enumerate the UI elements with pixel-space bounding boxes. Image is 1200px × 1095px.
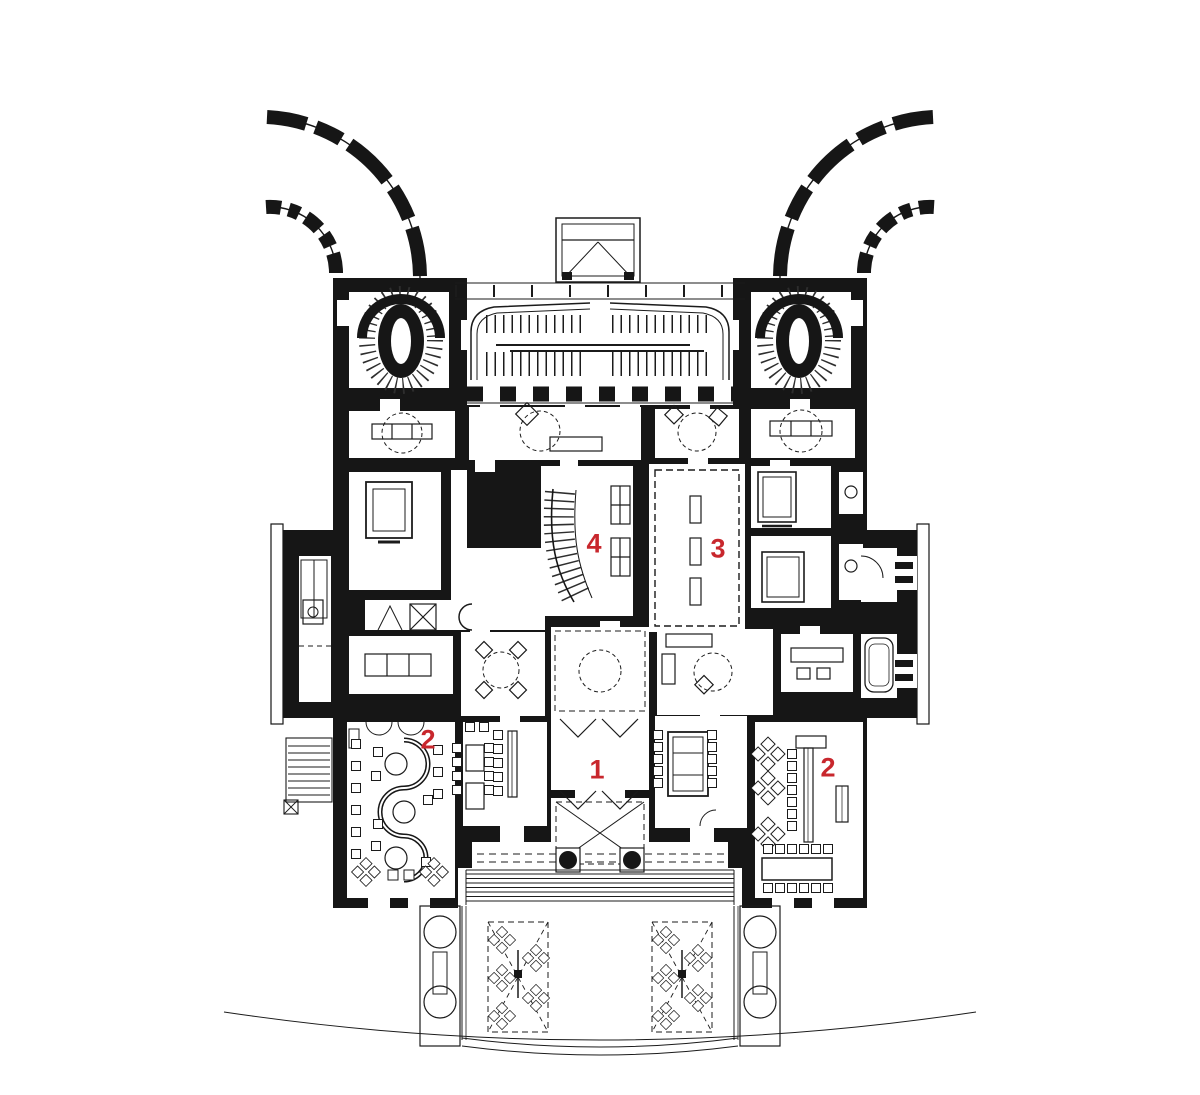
approach-wing-walls [266,117,934,278]
terrace-awning-left [488,922,550,1032]
side-stair-left [284,738,332,814]
floor-plan: 43212 [0,0,1200,1095]
floor-plan-drawing [0,0,1200,1095]
terrace-awning-right [652,922,712,1032]
terrace [224,906,976,1055]
